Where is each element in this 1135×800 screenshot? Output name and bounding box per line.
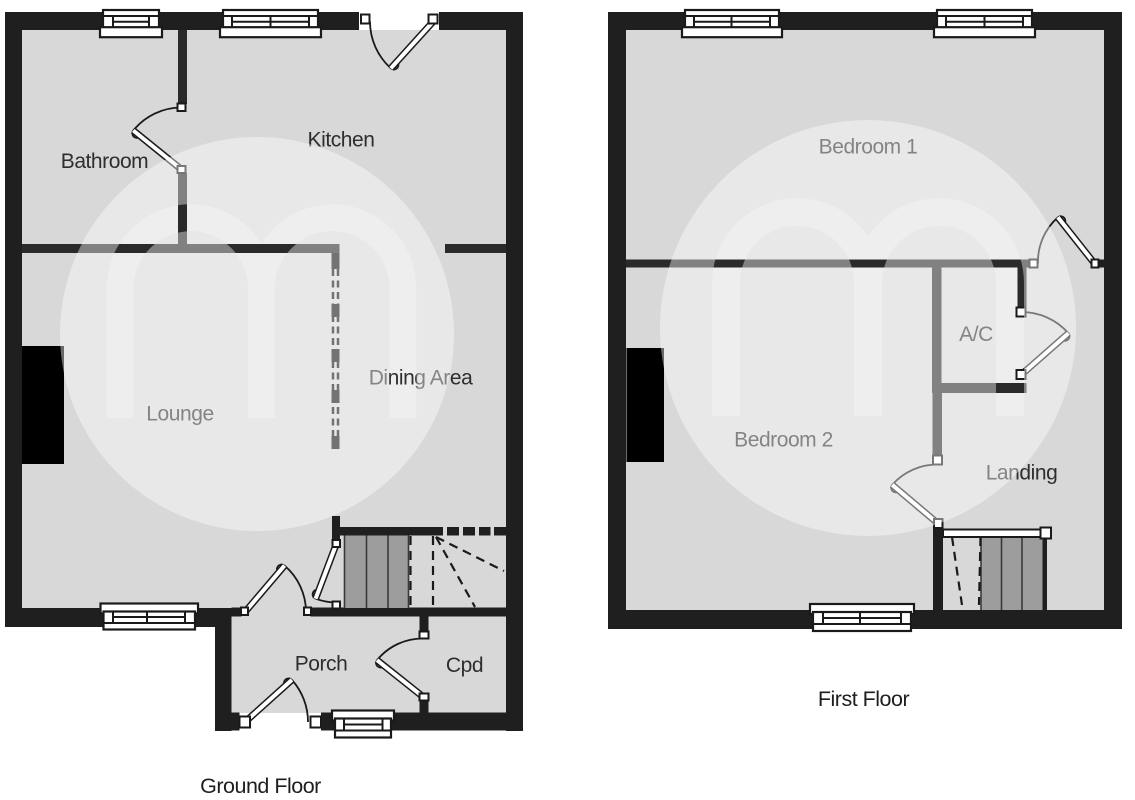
svg-text:Cpd: Cpd xyxy=(446,654,483,677)
svg-text:Bathroom: Bathroom xyxy=(61,150,148,173)
svg-text:First Floor: First Floor xyxy=(818,687,910,711)
svg-text:Ground Floor: Ground Floor xyxy=(200,774,321,798)
svg-text:Porch: Porch xyxy=(295,653,348,676)
